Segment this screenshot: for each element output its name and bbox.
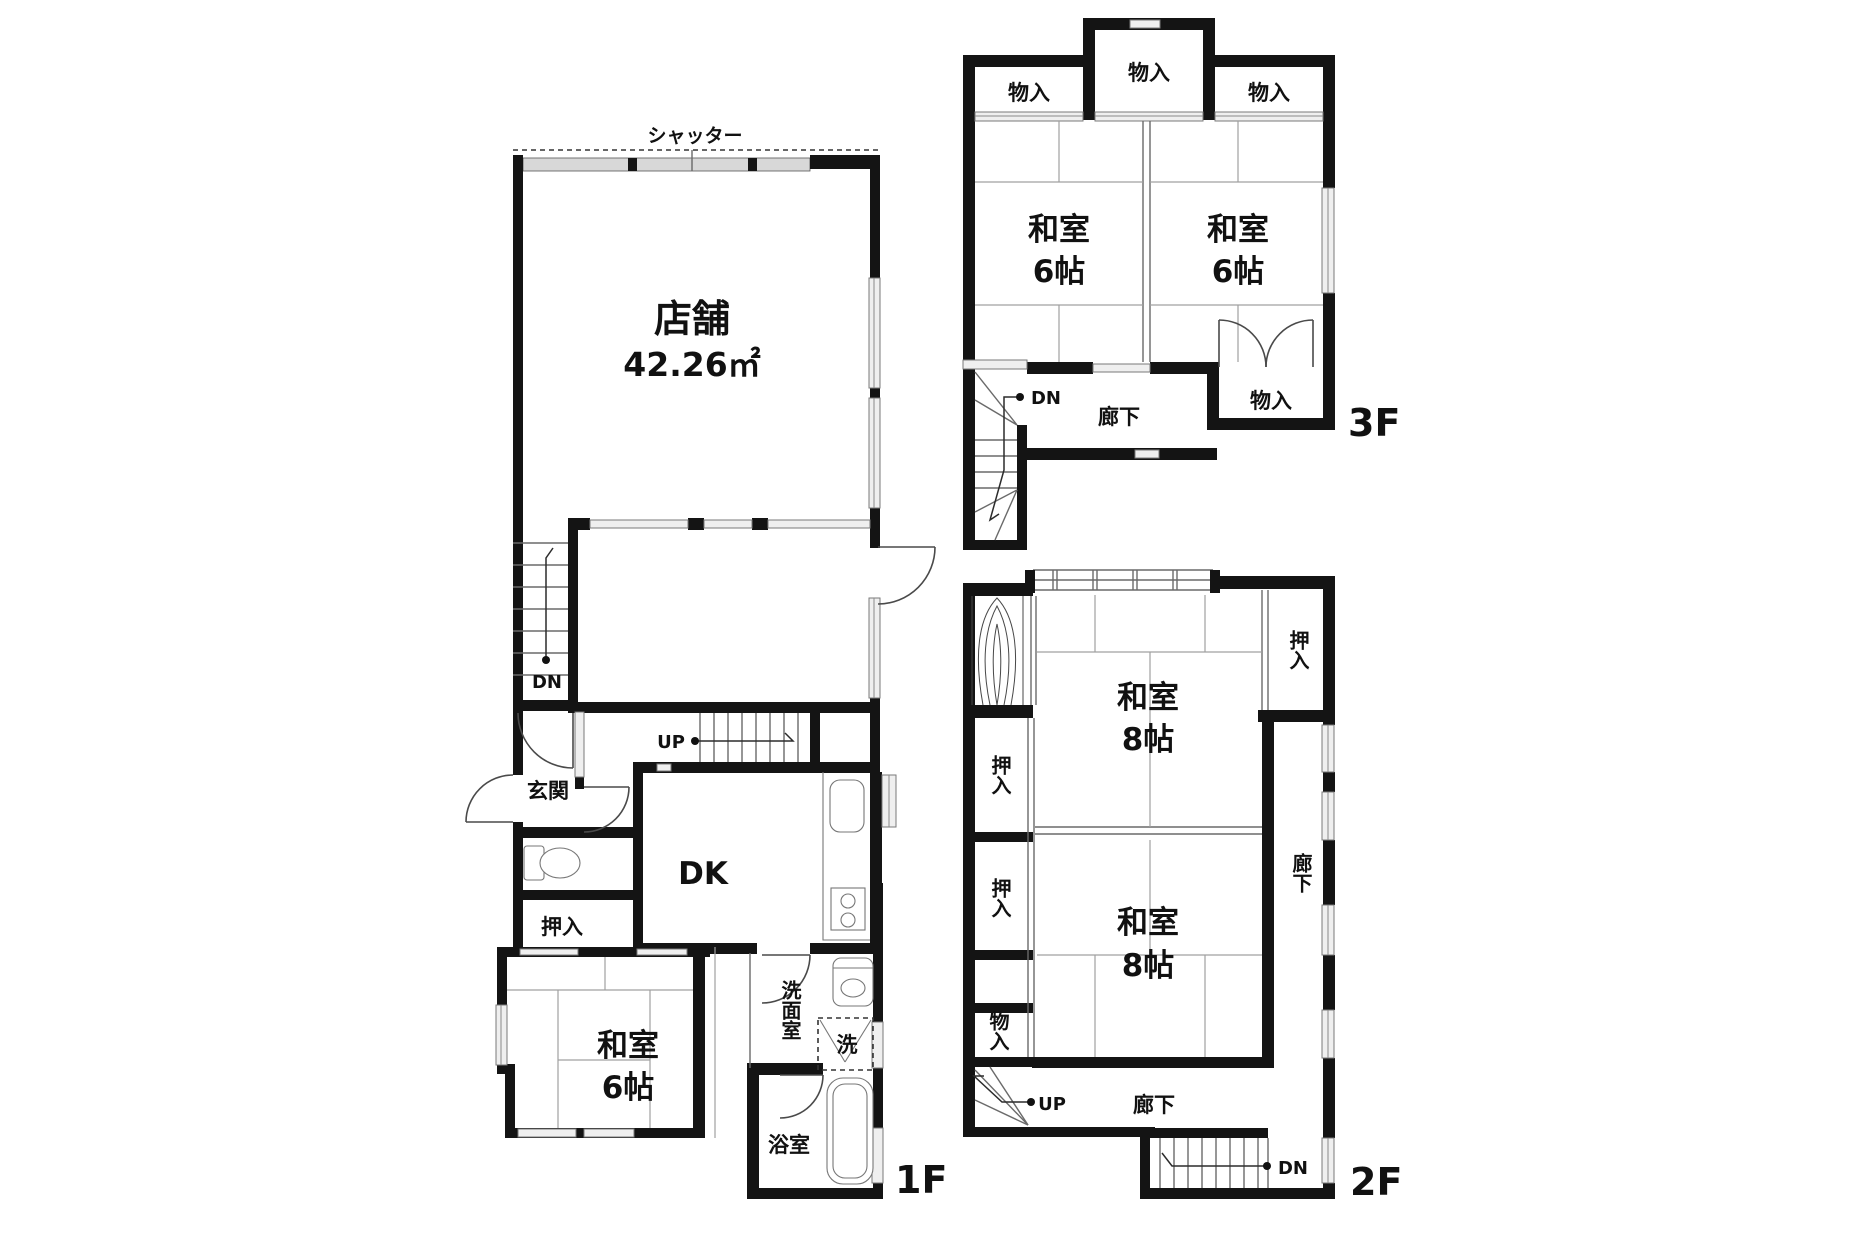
f2-corridor-right-label: 廊下 [1289, 852, 1313, 894]
f3-washitsu-left-label: 和室 [1028, 212, 1090, 248]
washroom-label: 洗面室 [778, 980, 802, 1040]
f2-washitsu-bottom-label: 和室 [1117, 905, 1179, 941]
f2-top-window [1033, 570, 1213, 590]
f2-stairs-down: DN [1160, 1138, 1308, 1188]
f2-closet-topright-label: 押入 [1286, 629, 1310, 670]
shop-label: 店舗 [654, 297, 730, 341]
floor-3f-plan: DN 物入 物入 物入 和室 6帖 和室 6帖 廊下 物入 3F [963, 18, 1400, 550]
f3-storage-center-label: 物入 [1128, 61, 1170, 85]
f1-washitsu-label: 和室 [597, 1028, 659, 1064]
f2-washitsu-top-size: 8帖 [1122, 722, 1175, 758]
shop-area-label: 42.26㎡ [623, 345, 760, 384]
f3-storage-bottom-label: 物入 [1250, 389, 1292, 413]
shutter-band [523, 158, 810, 171]
f2-corridor-bottom-label: 廊下 [1133, 1093, 1175, 1117]
floor-1f-plan: シャッター [466, 125, 947, 1202]
f2-storage-label: 物入 [986, 1010, 1010, 1051]
f2-washitsu-bottom-size: 8帖 [1122, 948, 1175, 984]
f3-storage-right-label: 物入 [1248, 81, 1290, 105]
f3-double-doors [1219, 320, 1313, 367]
f1-up-label: UP [657, 732, 685, 753]
f2-stairs-up: UP [974, 1067, 1066, 1125]
dk-label: DK [678, 856, 729, 892]
floor3-label: 3F [1348, 401, 1400, 445]
laundry-label: 洗 [837, 1033, 858, 1057]
kitchen-counter-icon [823, 772, 870, 940]
floorplan-svg: シャッター [0, 0, 1850, 1233]
f2-up-label: UP [1038, 1094, 1066, 1115]
floorplan-canvas: シャッター [0, 0, 1850, 1233]
f1-closet-label: 押入 [541, 915, 583, 939]
bathtub-icon [827, 1078, 873, 1184]
f3-dn-label: DN [1031, 388, 1061, 409]
f1-dn-label: DN [532, 672, 562, 693]
tokonoma-wood-grain [972, 596, 1036, 705]
f3-corridor-label: 廊下 [1098, 405, 1140, 429]
f1-washitsu-size: 6帖 [602, 1070, 655, 1106]
f2-closet-left1-label: 押入 [988, 754, 1012, 795]
f2-tatami-lines [1037, 595, 1262, 1057]
f2-washitsu-top-label: 和室 [1117, 680, 1179, 716]
f3-washitsu-right-size: 6帖 [1212, 254, 1265, 290]
f2-closet-left2-label: 押入 [988, 877, 1012, 918]
f3-washitsu-left-size: 6帖 [1033, 254, 1086, 290]
toilet-icon [524, 846, 580, 880]
f3-washitsu-right-label: 和室 [1207, 212, 1269, 248]
bathroom-label: 浴室 [768, 1133, 810, 1157]
floor2-label: 2F [1350, 1160, 1402, 1204]
f1-stairs-up: UP [657, 713, 798, 762]
entrance-label: 玄関 [527, 779, 569, 803]
floor-2f-plan: UP DN 押入 押入 押入 物入 廊下 和室 8帖 和室 8帖 廊下 2F [963, 570, 1402, 1204]
shutter-label: シャッター [647, 125, 742, 147]
washbasin-icon [833, 958, 873, 1006]
f2-dn-label: DN [1278, 1158, 1308, 1179]
floor1-label: 1F [895, 1158, 947, 1202]
f3-storage-left-label: 物入 [1008, 81, 1050, 105]
